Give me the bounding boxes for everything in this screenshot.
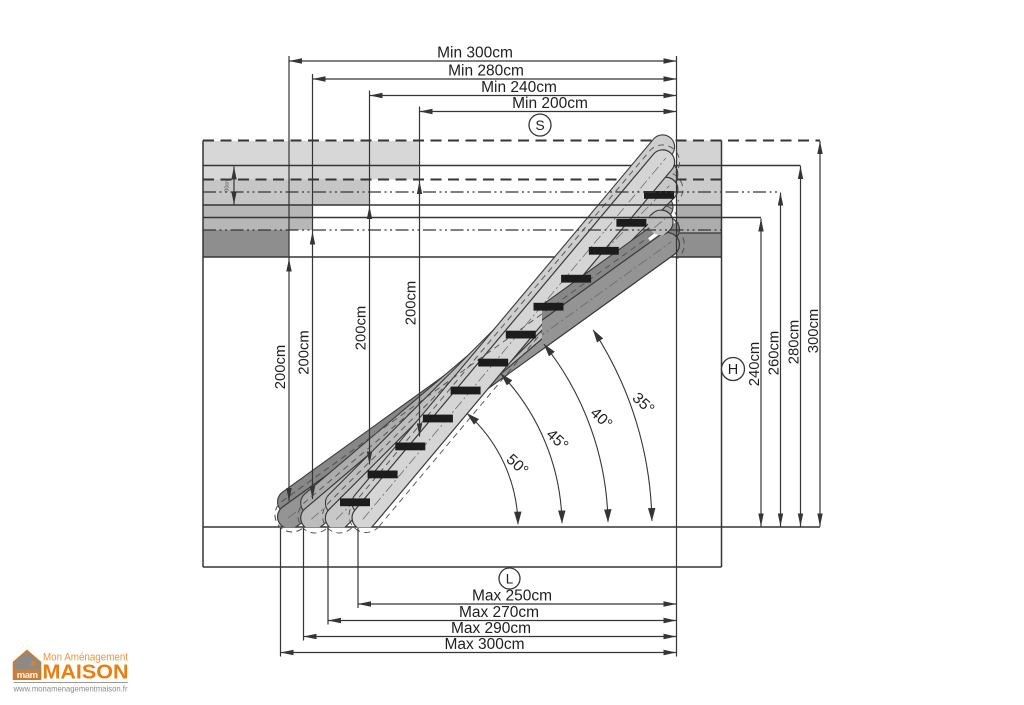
svg-text:Max 300cm: Max 300cm	[444, 636, 524, 653]
svg-text:30cm: 30cm	[225, 178, 231, 192]
svg-text:Max 250cm: Max 250cm	[472, 588, 552, 605]
svg-text:mam: mam	[17, 670, 38, 681]
svg-text:Min 300cm: Min 300cm	[437, 45, 513, 62]
svg-text:www.monamenagementmaison.fr: www.monamenagementmaison.fr	[13, 683, 128, 693]
svg-text:300cm: 300cm	[806, 309, 822, 353]
svg-text:L: L	[506, 571, 514, 586]
svg-text:200cm: 200cm	[297, 330, 313, 374]
svg-text:200cm: 200cm	[354, 306, 370, 350]
svg-text:200cm: 200cm	[273, 345, 289, 389]
svg-text:S: S	[535, 117, 544, 133]
svg-text:MAISON: MAISON	[43, 662, 129, 684]
svg-text:260cm: 260cm	[767, 331, 783, 375]
svg-text:280cm: 280cm	[787, 320, 803, 364]
svg-text:Max 270cm: Max 270cm	[459, 604, 539, 621]
svg-text:Min 200cm: Min 200cm	[512, 95, 588, 112]
svg-text:200cm: 200cm	[404, 281, 420, 325]
svg-text:240cm: 240cm	[747, 342, 763, 386]
svg-text:Min 280cm: Min 280cm	[448, 63, 524, 80]
svg-text:Max 290cm: Max 290cm	[451, 620, 531, 637]
svg-text:H: H	[728, 362, 738, 378]
svg-text:Min 240cm: Min 240cm	[481, 79, 557, 96]
